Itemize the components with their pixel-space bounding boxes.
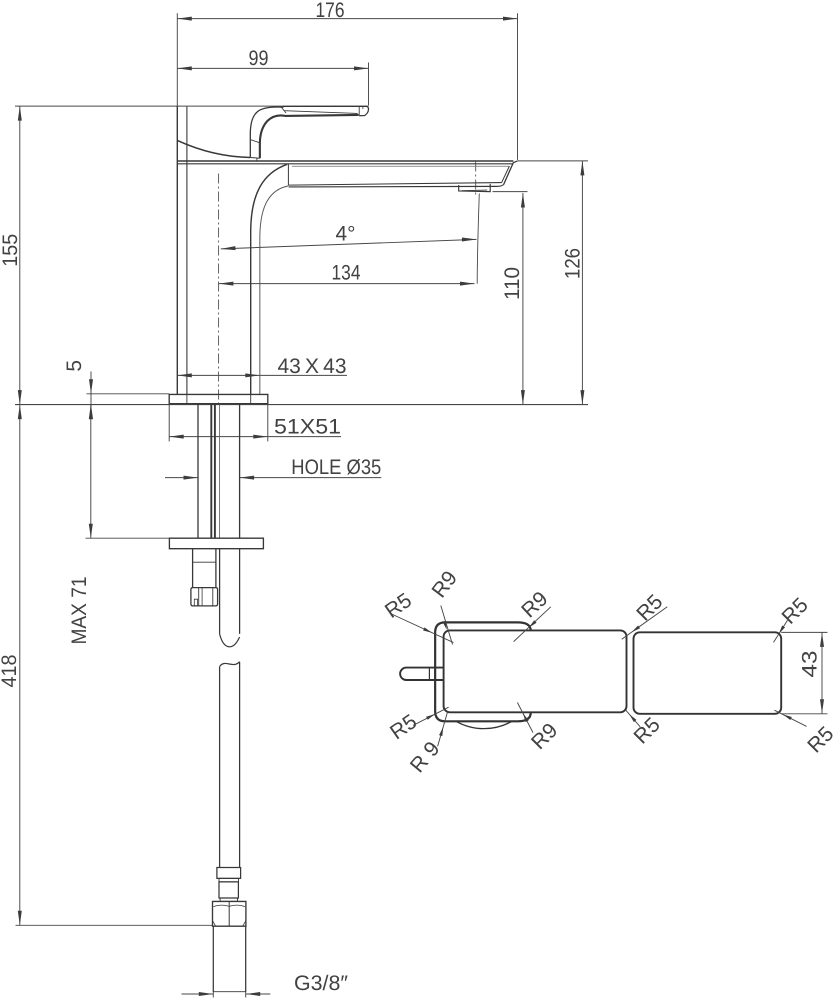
svg-text:134: 134 bbox=[332, 261, 361, 284]
svg-text:43 X 43: 43 X 43 bbox=[278, 355, 347, 378]
svg-text:110: 110 bbox=[501, 267, 524, 300]
svg-text:HOLE Ø35: HOLE Ø35 bbox=[291, 456, 381, 479]
svg-text:MAX 71: MAX 71 bbox=[68, 577, 91, 645]
svg-text:G3/8″: G3/8″ bbox=[294, 972, 349, 995]
svg-text:51X51: 51X51 bbox=[274, 415, 341, 438]
svg-text:5: 5 bbox=[63, 360, 86, 372]
svg-text:4°: 4° bbox=[336, 222, 356, 245]
svg-text:155: 155 bbox=[0, 234, 22, 267]
svg-text:126: 126 bbox=[562, 248, 585, 279]
svg-text:418: 418 bbox=[0, 655, 21, 688]
svg-text:99: 99 bbox=[249, 47, 269, 70]
svg-text:176: 176 bbox=[316, 0, 345, 22]
svg-text:43: 43 bbox=[799, 651, 822, 678]
